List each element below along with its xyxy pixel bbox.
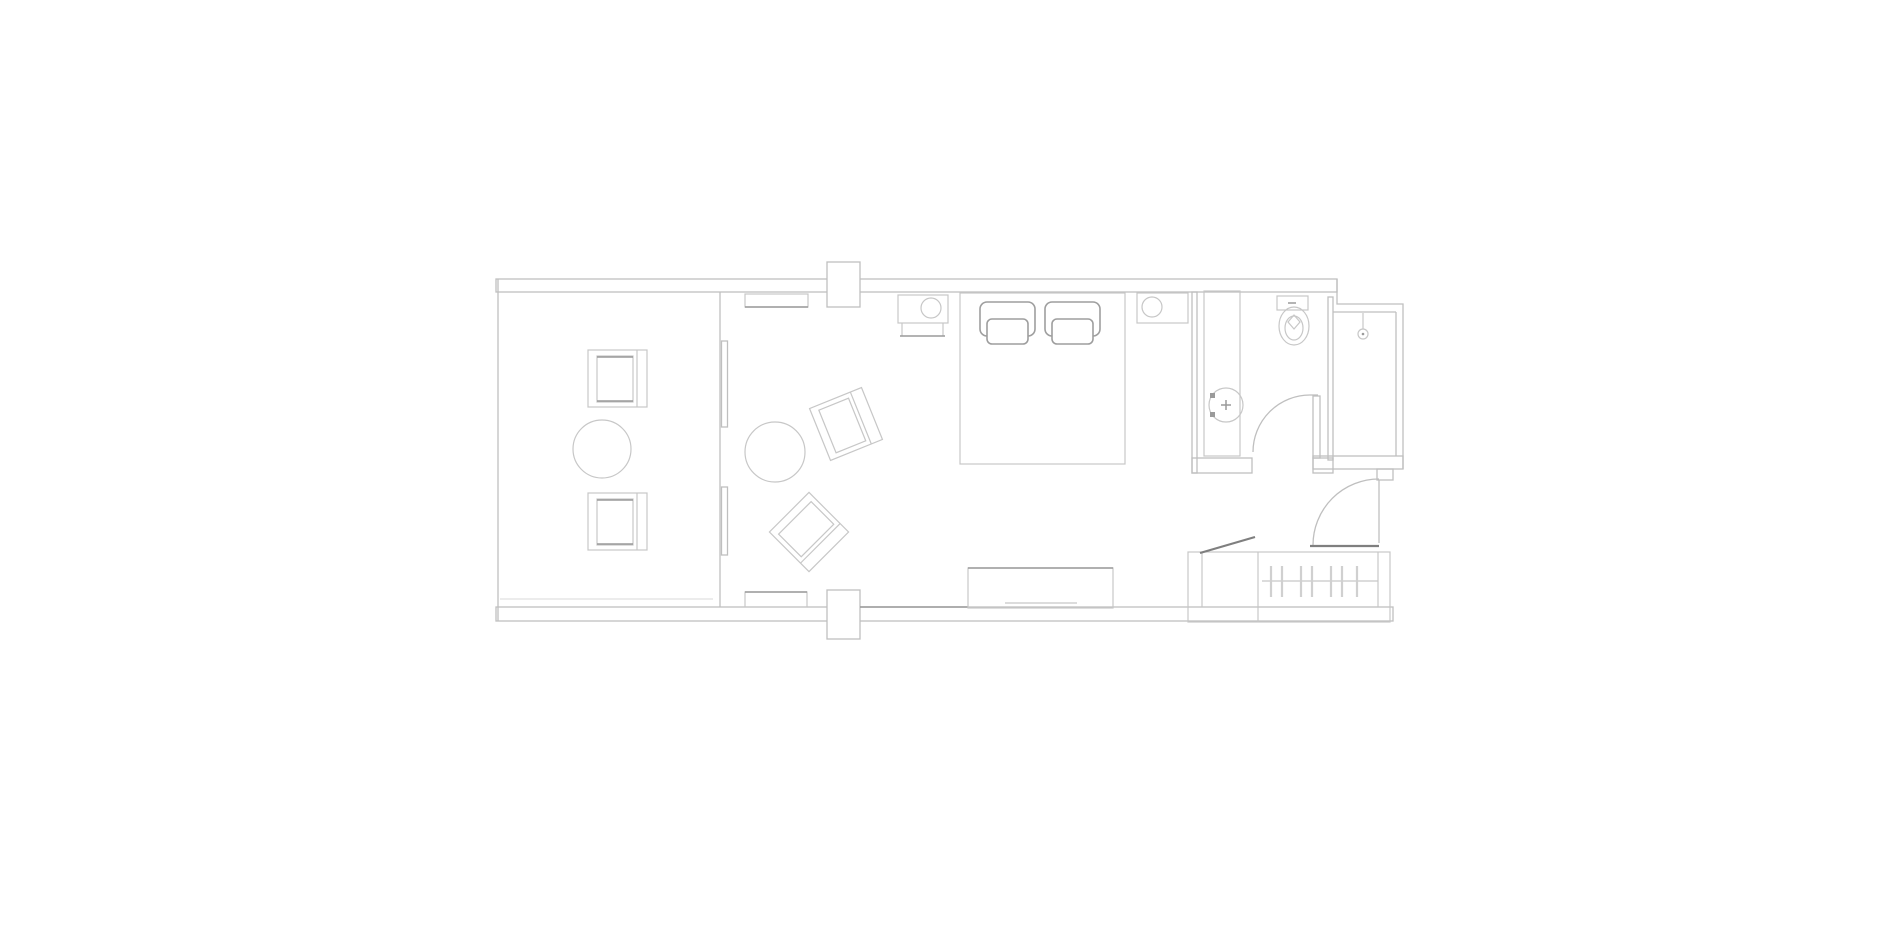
luggage-rack xyxy=(1200,537,1255,553)
entry-door xyxy=(1310,479,1379,546)
pillow-right xyxy=(1045,302,1100,344)
floor-plan-canvas xyxy=(0,0,1903,940)
bathroom-wall xyxy=(1192,292,1197,473)
round-side-table xyxy=(745,422,805,482)
step-inner-wall xyxy=(1333,312,1396,456)
shower-head xyxy=(1358,313,1368,339)
wc-right-wall xyxy=(1313,396,1320,458)
pillow-left xyxy=(980,302,1035,344)
sliding-panel-2 xyxy=(722,487,728,555)
bathroom-wall-foot xyxy=(1192,458,1252,473)
sliding-panel-1 xyxy=(722,341,728,427)
column-top xyxy=(827,262,860,307)
floor-plan-drawing xyxy=(0,0,1903,940)
tv-console xyxy=(968,568,1113,608)
vanity-counter xyxy=(1204,291,1240,456)
wall-console-top xyxy=(745,294,808,307)
wardrobe xyxy=(1188,552,1390,622)
entry-jamb xyxy=(1377,469,1393,480)
lounge-chair-1 xyxy=(810,388,883,461)
shower-left-wall xyxy=(1328,297,1333,460)
nightstand-right xyxy=(1137,293,1188,323)
balcony-armchair-1 xyxy=(588,350,647,407)
exterior-walls xyxy=(496,279,1403,621)
nightstand-left xyxy=(898,295,948,323)
top-wall xyxy=(496,279,1337,292)
balcony-armchair-2 xyxy=(588,493,647,550)
entry-door-arc xyxy=(1313,479,1379,545)
step-outer-wall xyxy=(1337,279,1403,469)
bathroom-door-arc xyxy=(1253,395,1310,452)
round-wash-basin xyxy=(1209,388,1243,422)
lounge-chair-2 xyxy=(769,492,848,571)
toilet xyxy=(1277,296,1309,345)
stool xyxy=(900,323,945,336)
column-bottom xyxy=(827,590,860,639)
bathroom-door xyxy=(1253,395,1318,452)
balcony-round-table xyxy=(573,420,631,478)
sliding-glass-door xyxy=(720,292,728,607)
interior-walls xyxy=(1192,292,1333,473)
wall-console-bottom xyxy=(745,592,807,607)
